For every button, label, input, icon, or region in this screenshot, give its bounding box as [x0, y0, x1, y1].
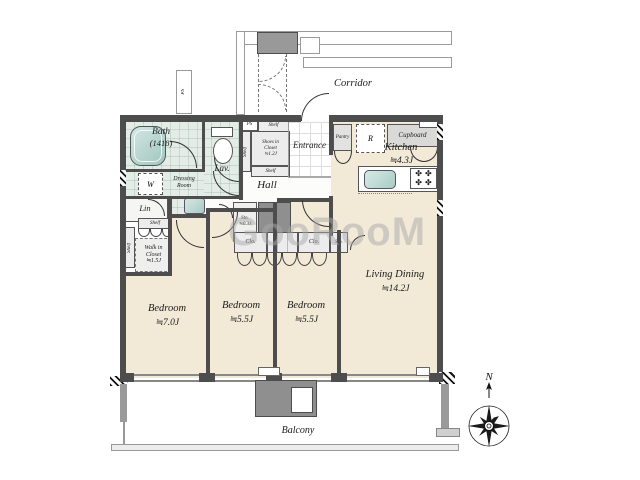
walk-in-closet-label: Closet	[146, 252, 161, 259]
window-pier	[429, 373, 443, 382]
wall-segment	[239, 120, 243, 200]
shoes-in-closet-box: Shoes in Closet ≒1.2J	[251, 131, 290, 166]
corridor-wall-band	[303, 57, 452, 68]
shelf-label: Shelf	[127, 243, 133, 253]
pipe-shaft-label: PS	[247, 122, 253, 128]
wall-hatch	[120, 170, 126, 186]
wall-segment	[120, 115, 126, 378]
balcony-side-wall	[441, 384, 449, 428]
stove-burner-icon: ✤✤✤✤	[415, 170, 431, 187]
walk-in-closet-label: Walk in	[145, 245, 163, 252]
shelf-box: Shelf	[138, 218, 172, 229]
entrance-step	[288, 176, 331, 178]
wall-segment	[329, 115, 443, 122]
corridor-dashed-line	[286, 54, 287, 112]
dressing-room-label-line: Dressing	[173, 176, 194, 182]
shelf-label: Shelf	[243, 147, 249, 157]
wall-segment	[206, 208, 210, 378]
wall-hatch	[437, 124, 443, 140]
corridor-shaft-block	[257, 32, 298, 54]
bedroom1-label: Bedroom	[138, 303, 196, 316]
wall-segment	[172, 214, 210, 218]
compass-rose-icon: N	[461, 368, 517, 460]
bedroom3-size: ≒5.5J	[276, 314, 336, 325]
pipe-shaft-box: PS	[176, 70, 192, 114]
bath-label: Bath	[135, 127, 187, 138]
stove: ✤✤✤✤	[410, 168, 437, 189]
compass-north-label: N	[484, 371, 493, 383]
bedroom3-label: Bedroom	[276, 300, 336, 313]
shelf-label: Shelf	[269, 123, 279, 129]
linen-label: Lin	[129, 203, 161, 213]
balcony-label: Balcony	[265, 425, 331, 437]
washing-machine-box: W	[138, 173, 163, 195]
corridor-box	[300, 37, 320, 54]
shoes-closet-size: ≒1.2J	[264, 152, 277, 158]
entrance-label: Entrance	[288, 140, 331, 151]
balcony-railing	[111, 444, 459, 451]
bedroom1-size: ≒7.0J	[138, 317, 196, 328]
shelf-box: Shelf	[251, 166, 290, 177]
pantry-label: Pantry	[336, 135, 350, 141]
cupboard-label: Cupboard	[398, 131, 426, 139]
shelf-box: Shelf	[125, 227, 135, 268]
wall-segment	[437, 115, 443, 378]
hall-label: Hall	[248, 179, 286, 192]
washbasin	[184, 198, 205, 214]
wall-segment	[202, 122, 205, 171]
wall-segment	[125, 169, 205, 172]
wall-segment	[168, 198, 172, 276]
living-dining-label: Living Dining	[358, 269, 432, 282]
wall-segment	[125, 272, 172, 276]
kitchen-label: Kitchen	[375, 142, 427, 155]
walk-in-closet-size: ≒1.5J	[146, 258, 161, 265]
refrigerator-label: R	[368, 134, 373, 143]
corridor-dashed-arc	[258, 84, 286, 110]
corridor-dashed-arc	[258, 56, 286, 82]
pantry-box: Pantry	[333, 124, 352, 151]
kitchen-sink	[364, 170, 396, 189]
closet-folding-door	[150, 229, 162, 237]
dressing-room-label-line: Room	[177, 183, 191, 189]
bedroom2-label: Bedroom	[211, 300, 271, 313]
counter-edge-line	[358, 193, 412, 194]
window-pier	[199, 373, 215, 382]
floor-plan: PS Corridor PS Shelf Shelf Shoes in Clos…	[0, 0, 640, 480]
bedroom2-size: ≒5.5J	[211, 314, 271, 325]
washing-machine-label: W	[147, 180, 154, 189]
living-dining-size: ≒14.2J	[358, 283, 432, 294]
shelf-label: Shelf	[266, 169, 276, 175]
wall-segment	[120, 115, 301, 122]
balcony-divider-line	[123, 422, 125, 444]
balcony-side-wall	[120, 384, 127, 422]
walk-in-closet-box: Walk in Closet ≒1.5J	[135, 238, 172, 272]
dressing-room-label: Dressing Room	[165, 176, 203, 190]
toilet-tank	[211, 127, 233, 137]
watermark: GooRooM	[228, 210, 426, 255]
balcony-hatch-opening	[291, 387, 313, 413]
corridor-label: Corridor	[318, 78, 388, 91]
corridor-wall-connector	[236, 31, 245, 115]
window-box	[416, 367, 430, 376]
entrance-door-arc	[301, 93, 329, 121]
shelf-label: Shelf	[150, 221, 160, 227]
wall-segment	[125, 196, 243, 199]
pipe-shaft-label: PS	[181, 89, 187, 95]
compass: N	[461, 368, 517, 460]
lavatory-label: Lav.	[206, 163, 238, 174]
wall-hatch	[437, 200, 443, 216]
kitchen-size: ≒4.3J	[375, 155, 427, 166]
closet-folding-door	[138, 229, 150, 237]
balcony-side-base	[436, 428, 460, 437]
window-pier	[120, 373, 134, 382]
bath-size: (1418)	[135, 138, 187, 148]
window-pier	[331, 373, 347, 382]
window-box	[258, 367, 280, 376]
